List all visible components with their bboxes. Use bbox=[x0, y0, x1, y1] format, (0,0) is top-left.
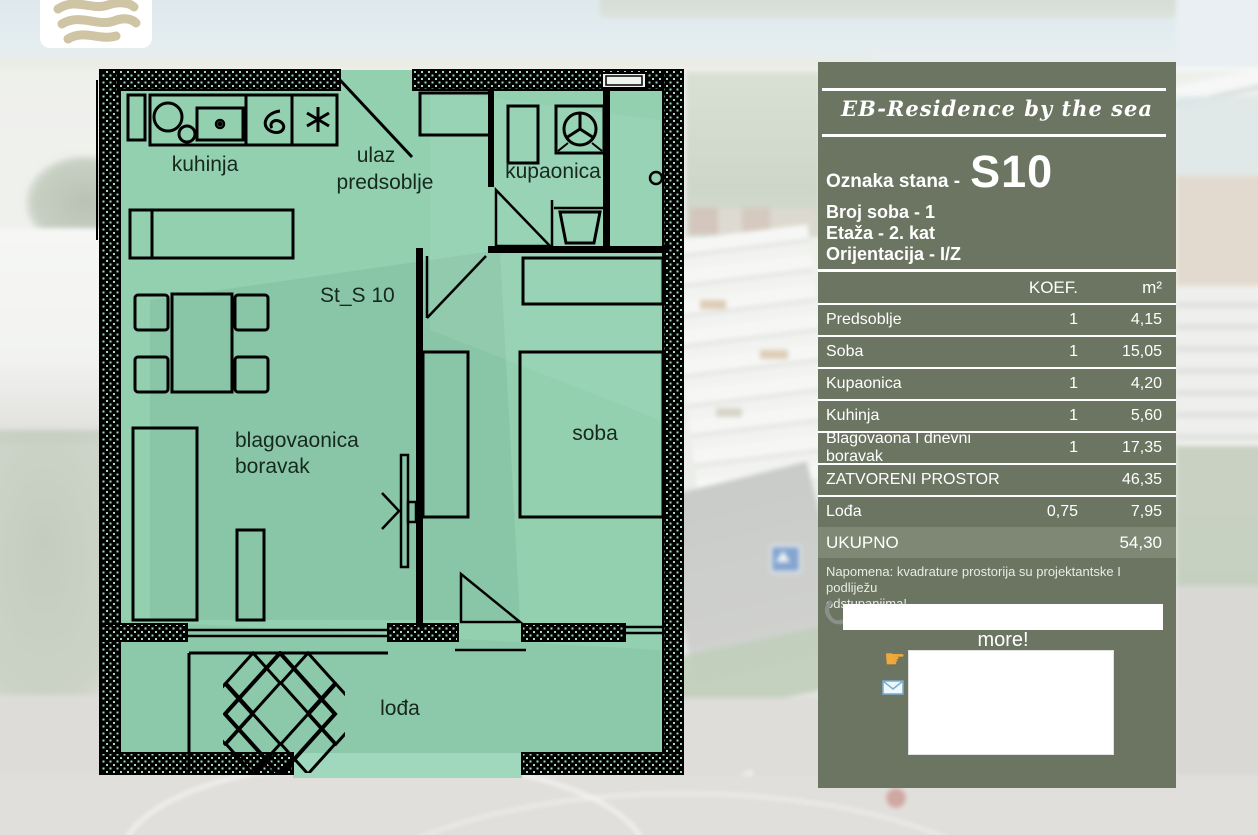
table-row: Lođa 0,75 7,95 bbox=[818, 497, 1176, 529]
unit-row: Oznaka stana - S10 bbox=[826, 146, 1170, 198]
brand-title: EB-Residence by the sea bbox=[818, 96, 1176, 121]
table-row: Predsoblje 1 4,15 bbox=[818, 305, 1176, 337]
label-entrance: ulaz bbox=[357, 144, 396, 167]
info-floor: Etaža - 2. kat bbox=[826, 223, 961, 244]
label-bathroom: kupaonica bbox=[505, 160, 601, 183]
table-header: KOEF. m² bbox=[818, 269, 1176, 305]
unit-label: Oznaka stana - bbox=[826, 171, 960, 193]
area-table: KOEF. m² Predsoblje 1 4,15 Soba 1 15,05 … bbox=[818, 269, 1176, 529]
label-loggia: lođa bbox=[380, 697, 420, 720]
unit-value: S10 bbox=[970, 146, 1053, 198]
table-row: Kupaonica 1 4,20 bbox=[818, 369, 1176, 401]
divider bbox=[822, 134, 1166, 137]
unit-info: Broj soba - 1 Etaža - 2. kat Orijentacij… bbox=[826, 202, 961, 265]
total-area: 54,30 bbox=[1078, 533, 1162, 553]
total-label: UKUPNO bbox=[826, 533, 1078, 553]
info-rooms: Broj soba - 1 bbox=[826, 202, 961, 223]
info-orientation: Orijentacija - I/Z bbox=[826, 244, 961, 265]
divider bbox=[822, 88, 1166, 91]
table-row: Blagovaona I dnevni boravak 1 17,35 bbox=[818, 433, 1176, 465]
koef-header: KOEF. bbox=[1006, 278, 1078, 298]
label-hallway: predsoblje bbox=[337, 171, 434, 194]
table-row: ZATVORENI PROSTOR 46,35 bbox=[818, 465, 1176, 497]
label-unit: St_S 10 bbox=[320, 284, 395, 307]
pointing-finger-icon: ☛ bbox=[884, 645, 906, 674]
label-bedroom: soba bbox=[572, 422, 618, 445]
table-row: Kuhinja 1 5,60 bbox=[818, 401, 1176, 433]
contact-box[interactable] bbox=[908, 650, 1114, 755]
label-living-1: blagovaonica bbox=[235, 429, 359, 452]
label-kitchen: kuhinja bbox=[172, 153, 239, 176]
info-panel: EB-Residence by the sea Oznaka stana - S… bbox=[818, 62, 1176, 788]
contact-bar[interactable] bbox=[843, 604, 1163, 630]
total-row: UKUPNO 54,30 bbox=[818, 527, 1176, 558]
envelope-icon[interactable] bbox=[882, 680, 904, 695]
page: { "logo": {"name": "wave-logo"}, "floorp… bbox=[0, 0, 1258, 835]
area-header: m² bbox=[1078, 278, 1162, 298]
table-row: Soba 1 15,05 bbox=[818, 337, 1176, 369]
label-living-2: boravak bbox=[235, 455, 310, 478]
